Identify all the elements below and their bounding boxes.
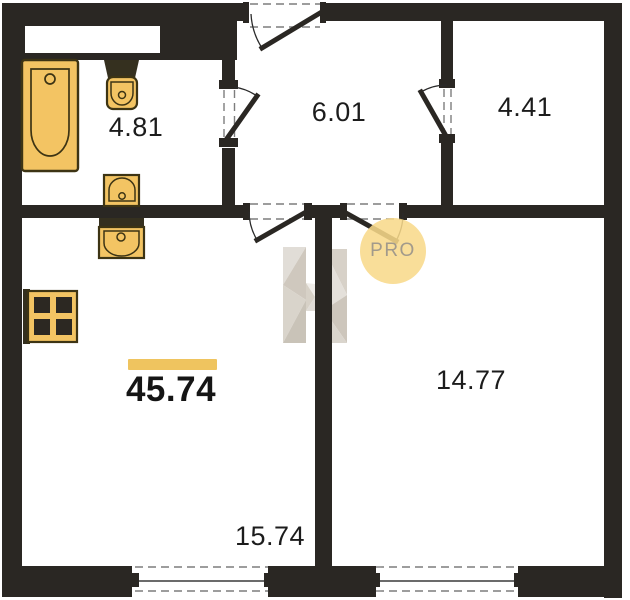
bathroom-sink-icon [104, 175, 139, 206]
kitchen-area-label: 15.74 [215, 523, 325, 550]
wall-niche [25, 26, 160, 53]
total-area-label: 45.74 [116, 371, 226, 410]
floorplan-page: 4.81 6.01 4.41 15.74 14.77 45.74 PRO [0, 0, 630, 600]
small-room-area-label: 4.41 [470, 94, 580, 121]
kitchen-sink-icon [99, 218, 144, 258]
stove-icon [23, 289, 77, 344]
total-area-highlight-bar [128, 359, 217, 370]
floorplan-canvas [0, 0, 630, 600]
room-area-label: 14.77 [416, 367, 526, 394]
toilet-icon [104, 60, 139, 109]
bathroom-area-label: 4.81 [81, 114, 191, 141]
bathtub-icon [22, 60, 78, 171]
hallway-area-label: 6.01 [284, 99, 394, 126]
watermark-pro-badge: PRO [361, 241, 425, 260]
